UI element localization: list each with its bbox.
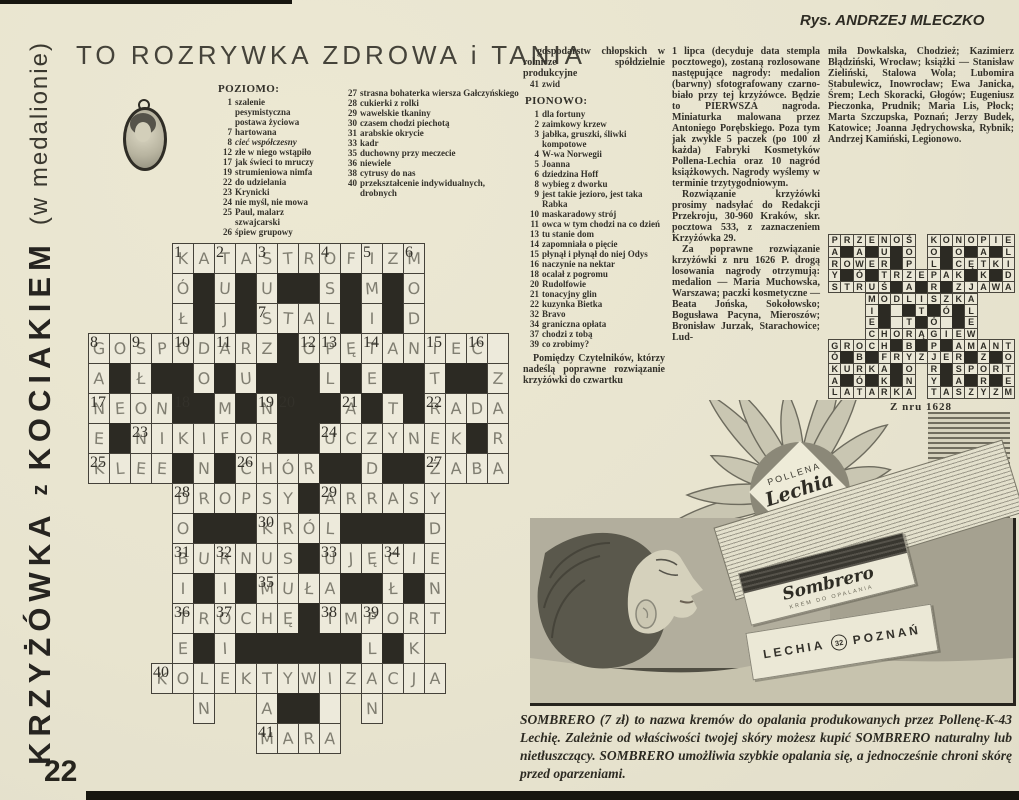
solution-letter: Ś — [879, 282, 890, 293]
crossword-cell: N — [235, 543, 257, 574]
clue-text: wybieg z dworku — [542, 179, 665, 189]
ad-box-city: POZNAŃ — [852, 623, 922, 648]
solution-letter: S — [928, 294, 939, 305]
crossword-cell: A — [445, 453, 467, 484]
pencil-letter: I — [362, 304, 382, 333]
crossword-cell: Y — [277, 663, 299, 694]
crossword-cell: O — [130, 393, 152, 424]
crossword-cell: N — [361, 693, 383, 724]
solution-letter: A — [978, 247, 989, 258]
clue-text: kuzynka Bietka — [542, 299, 665, 309]
crossword-cell: R — [256, 423, 278, 454]
solution-letter: L — [829, 387, 840, 398]
solution-letter: R — [928, 282, 939, 293]
crossword-black-cell — [214, 363, 236, 394]
crossword-black-cell — [109, 363, 131, 394]
solution-letter: K — [829, 364, 840, 375]
across-clues-col2: 27strasna bohaterka wiersza Gałczyńskieg… — [341, 88, 519, 198]
clue-text: strasna bohaterka wiersza Gałczyńskiego — [360, 88, 519, 98]
crossword-cell: Z — [361, 423, 383, 454]
ad-caption-text: SOMBRERO (7 zł) to nazwa kremów do opala… — [520, 712, 1012, 781]
pencil-letter: Z — [340, 663, 362, 693]
crossword-cell: M — [361, 273, 383, 304]
crossword-cell: R — [298, 453, 320, 484]
solution-letter: A — [978, 340, 989, 351]
pencil-letter: J — [340, 543, 361, 573]
crossword-cell: O — [172, 663, 194, 694]
pencil-letter: D — [362, 454, 383, 484]
solution-letter: Ó — [941, 305, 952, 316]
clue-number: 41 — [523, 79, 542, 89]
clue-text: jest takie jezioro, jest taka Rabka — [542, 189, 665, 209]
pencil-letter: A — [382, 333, 403, 363]
crossword-black-cell — [256, 633, 278, 664]
pencil-letter: U — [235, 363, 257, 393]
solution-letter: A — [829, 375, 840, 386]
crossword-black-cell — [382, 303, 404, 334]
pencil-letter: R — [488, 424, 509, 453]
crossword-black-cell — [319, 393, 341, 424]
crossword-cell: Ł — [130, 363, 152, 394]
solution-letter: O — [879, 294, 890, 305]
clue-text: nie myśl, nie mowa — [235, 197, 322, 207]
article-col2: 1 lipca (decyduje data stempla pocztoweg… — [672, 46, 820, 343]
crossword-cell: S — [256, 483, 278, 514]
clue-text: cytrusy do nas — [360, 168, 519, 178]
solution-letter: P — [829, 235, 840, 246]
clue-item: 28cukierki z rolki — [341, 98, 519, 108]
clue-text: owca w tym chodzi na co dzień — [542, 219, 665, 229]
solution-letter: A — [953, 375, 964, 386]
solution-letter: E — [916, 270, 927, 281]
pencil-letter: H — [257, 454, 278, 484]
across-list: 1szalenie pesymistyczna postawa życiowa7… — [216, 97, 322, 237]
solution-letter: A — [953, 340, 964, 351]
down-clues-col: gospodarstw chłopskich w rolnicze spółdz… — [523, 46, 665, 386]
solution-letter: E — [953, 329, 964, 340]
pencil-letter: A — [446, 394, 467, 423]
crossword-cell: A — [382, 333, 404, 364]
clue-number: 5 — [523, 159, 542, 169]
clue-item: 8cieć współczesny — [216, 137, 322, 147]
solution-letter: B — [854, 352, 865, 363]
clue-number: 8 — [523, 179, 542, 189]
pencil-letter: S — [320, 274, 341, 304]
solution-letter: L — [1003, 247, 1014, 258]
crossword-cell: F — [214, 423, 236, 454]
solution-letter: E — [965, 317, 976, 328]
solution-letter: N — [953, 235, 964, 246]
clue-number-in-grid: 4 — [321, 244, 329, 262]
clue-number: 6 — [523, 169, 542, 179]
crossword-cell: W — [298, 663, 320, 694]
clue-number: 7 — [216, 127, 235, 137]
crossword-black-cell — [193, 393, 215, 424]
pencil-letter: Ł — [173, 304, 193, 333]
clue-item: 5Joanna — [523, 159, 665, 169]
clue-text: arabskie okrycie — [360, 128, 519, 138]
clue-item: 12złe w niego wstąpiło — [216, 147, 322, 157]
pencil-letter: R — [298, 723, 320, 753]
crossword-cell: L — [319, 363, 341, 394]
solution-cell: Z — [964, 386, 977, 399]
page-number: 22 — [44, 755, 77, 789]
clue-number-in-grid: 24 — [321, 424, 337, 442]
solution-letter: Ó — [854, 375, 865, 386]
crossword-cell: Z — [340, 663, 362, 694]
clue-item: 17jak świeci to mruczy — [216, 157, 322, 167]
pencil-letter: C — [341, 424, 362, 453]
solution-cell: M — [1002, 386, 1015, 399]
crossword-cell: E — [172, 633, 194, 664]
crossword-black-cell — [298, 363, 320, 394]
crossword-cell: Y — [424, 483, 446, 514]
pencil-letter: Y — [382, 423, 403, 453]
crossword-cell: I — [214, 573, 236, 604]
crossword-cell: O — [214, 483, 236, 514]
clue-number-in-grid: 31 — [174, 544, 190, 562]
solution-letter: K — [978, 270, 989, 281]
pencil-letter: O — [194, 364, 215, 394]
solution-letter: R — [928, 364, 939, 375]
pencil-letter: R — [298, 453, 320, 483]
crossword-black-cell — [382, 273, 404, 304]
crossword-cell: O — [193, 363, 215, 394]
pencil-letter: O — [172, 663, 193, 693]
solution-cell: S — [828, 281, 841, 294]
solution-letter: L — [965, 305, 976, 316]
crossword-cell: K — [172, 423, 194, 454]
clue-text: cukierki z rolki — [360, 98, 519, 108]
solution-letter: A — [978, 282, 989, 293]
clue-number: 36 — [341, 158, 360, 168]
crossword-grid: KATASTROFIZMÓUUSMOŁJSTALIDGOSPODARZOPĘTA… — [88, 243, 508, 755]
clue-item: 38cytrusy do nas — [341, 168, 519, 178]
pencil-letter: A — [194, 244, 214, 273]
crossword-cell: R — [487, 423, 509, 454]
crossword-cell: L — [109, 453, 131, 484]
pencil-letter: D — [193, 333, 214, 363]
crossword-cell: T — [424, 363, 446, 394]
crossword-cell: A — [193, 243, 215, 274]
crossword-cell: I — [403, 543, 425, 574]
crossword-cell: R — [193, 483, 215, 514]
crossword-black-cell — [340, 303, 362, 334]
crossword-cell: R — [277, 513, 299, 544]
crossword-cell: O — [109, 333, 131, 364]
crossword-black-cell — [235, 273, 257, 304]
crossword-cell: Ł — [382, 573, 404, 604]
clue-number-in-grid: 6 — [405, 244, 413, 262]
clue-number: 23 — [216, 187, 235, 197]
clue-text: złe w niego wstąpiło — [235, 147, 322, 157]
crossword-cell: J — [340, 543, 362, 574]
crossword-cell: I — [172, 573, 194, 604]
crossword-black-cell — [235, 393, 257, 424]
solution-letter: A — [965, 294, 976, 305]
crossword-black-cell — [298, 603, 320, 634]
clue-text: tu stanie dom — [542, 229, 665, 239]
solution-letter: Z — [990, 387, 1001, 398]
solution-letter: E — [941, 352, 952, 363]
crossword-cell: Z — [382, 243, 404, 274]
clue-item: 30czasem chodzi piechotą — [341, 118, 519, 128]
crossword-cell: O — [382, 603, 404, 634]
pencil-letter: E — [89, 424, 110, 454]
vertical-subtitle: (w medalionie) — [26, 41, 54, 225]
pencil-letter: E — [425, 544, 446, 574]
clue-number-in-grid: 40 — [153, 664, 169, 682]
clue-number-in-grid: 25 — [90, 454, 106, 472]
crossword-black-cell — [298, 543, 320, 574]
clue-text: chodzi z tobą — [542, 329, 665, 339]
clue-text: Bravo — [542, 309, 665, 319]
clue-number-in-grid: 16 — [468, 334, 484, 352]
clue-item: 6dziedzina Hoff — [523, 169, 665, 179]
pencil-letter: S — [257, 484, 278, 514]
clue-number-in-grid: 9 — [132, 334, 140, 352]
crossword-cell: B — [466, 453, 488, 484]
clue-number-in-grid: 34 — [384, 544, 400, 562]
solution-grid: PRZENOŚKONOPIEAAUOOOALROWERPLCĘTKIYÓTRZE… — [828, 234, 1016, 398]
crossword-cell: I — [193, 423, 215, 454]
crossword-cell: D — [403, 303, 425, 334]
crossword-black-cell — [193, 573, 215, 604]
solution-letter: E — [866, 258, 877, 269]
clue-item: 3jabłka, gruszki, śliwki kompotowe — [523, 129, 665, 149]
crossword-black-cell — [466, 363, 488, 394]
solution-letter: I — [916, 294, 927, 305]
clue-item: 22kuzynka Bietka — [523, 299, 665, 309]
solution-letter: R — [841, 235, 852, 246]
crossword-black-cell — [151, 363, 173, 394]
clue-item: 23Krynicki — [216, 187, 322, 197]
solution-cell: Z — [915, 351, 928, 364]
clue-text: duchowny przy meczecie — [360, 148, 519, 158]
solution-letter: P — [928, 340, 939, 351]
crossword-cell: Y — [382, 423, 404, 454]
clue-text: niewiele — [360, 158, 519, 168]
pencil-letter: R — [193, 483, 215, 513]
crossword-cell: A — [298, 303, 320, 334]
clue-number: 9 — [523, 189, 542, 209]
crossword-cell: A — [277, 723, 299, 754]
clue-number-in-grid: 36 — [174, 604, 190, 622]
clue-text: maskaradowy strój — [542, 209, 665, 219]
pencil-letter: K — [236, 664, 256, 693]
crossword-cell: D — [193, 333, 215, 364]
solution-cell: T — [927, 386, 940, 399]
crossword-cell: S — [319, 273, 341, 304]
solution-cell: Y — [977, 386, 990, 399]
scan-edge-top — [0, 0, 292, 4]
crossword-black-cell — [235, 633, 257, 664]
pencil-letter: Ł — [298, 573, 319, 603]
pencil-letter: P — [151, 333, 173, 363]
clue-item: 26śpiew grupowy — [216, 227, 322, 237]
pencil-letter: C — [236, 604, 257, 633]
pencil-letter: N — [193, 693, 214, 723]
crossword-black-cell — [109, 423, 131, 454]
crossword-cell: C — [382, 663, 404, 694]
pencil-letter: O — [110, 334, 131, 364]
solution-letter: C — [953, 258, 964, 269]
crossword-cell: Ł — [172, 303, 194, 334]
pencil-letter: R — [236, 334, 257, 363]
clue-text: cieć współczesny — [235, 137, 322, 147]
clue-text: śpiew grupowy — [235, 227, 322, 237]
solution-letter: B — [903, 340, 914, 351]
solution-letter: T — [1003, 340, 1014, 351]
solution-letter: D — [1003, 270, 1014, 281]
clue-number: 10 — [523, 209, 542, 219]
pencil-letter: O — [235, 423, 257, 453]
pencil-letter: D — [467, 394, 488, 424]
pencil-letter: Ę — [340, 333, 362, 363]
clue-number-in-grid: 32 — [216, 544, 232, 562]
across-header: POZIOMO: — [218, 84, 322, 94]
crossword-cell: U — [193, 543, 215, 574]
crossword-cell: R — [340, 483, 362, 514]
clue-number: 20 — [523, 279, 542, 289]
solution-letter: C — [866, 329, 877, 340]
crossword-cell: E — [424, 423, 446, 454]
clue-item: 15płynął i płynął do niej Odys — [523, 249, 665, 259]
crossword-black-cell — [277, 693, 299, 724]
solution-letter: S — [829, 282, 840, 293]
crossword-cell: R — [403, 603, 425, 634]
clue-text: ocalał z pogromu — [542, 269, 665, 279]
solution-letter: T — [841, 282, 852, 293]
solution-letter: A — [1003, 282, 1014, 293]
solution-letter: K — [953, 294, 964, 305]
pencil-letter: R — [193, 603, 214, 633]
crossword-cell: J — [214, 303, 236, 334]
clue-number: 18 — [523, 269, 542, 279]
pencil-letter: M — [215, 394, 236, 423]
clue-item: 4W-wa Norwegii — [523, 149, 665, 159]
crossword-cell: A — [361, 663, 383, 694]
crossword-cell: E — [445, 333, 467, 364]
clue-item: 40przekształcenie indywidualnych, drobny… — [341, 178, 519, 198]
clue-item: 25Paul, malarz szwajcarski — [216, 207, 322, 227]
solution-letter: T — [1003, 364, 1014, 375]
pencil-letter: E — [130, 453, 152, 483]
clue-number: 37 — [523, 329, 542, 339]
clue-item: 37chodzi z tobą — [523, 329, 665, 339]
pencil-letter: A — [320, 574, 341, 604]
solution-letter: K — [953, 270, 964, 281]
solution-letter: Z — [941, 294, 952, 305]
solution-letter: I — [941, 329, 952, 340]
crossword-black-cell — [382, 363, 404, 394]
solution-letter: D — [891, 294, 902, 305]
solution-letter: P — [965, 364, 976, 375]
clue-number: 8 — [216, 137, 235, 147]
crossword-black-cell — [340, 573, 362, 604]
pencil-letter: T — [383, 394, 404, 424]
solution-cell: R — [878, 386, 891, 399]
crossword-cell: K — [403, 633, 425, 664]
solution-cell: L — [828, 386, 841, 399]
pencil-letter: R — [298, 243, 320, 273]
crossword-black-cell — [172, 363, 194, 394]
crossword-black-cell — [403, 573, 425, 604]
solution-letter: R — [879, 258, 890, 269]
pencil-letter: L — [194, 664, 215, 694]
clue-text: zwid — [542, 79, 665, 89]
solution-letter: R — [829, 258, 840, 269]
crossword-black-cell — [277, 363, 299, 394]
clue-number-in-grid: 2 — [216, 244, 224, 262]
pencil-letter: A — [256, 693, 277, 723]
crossword-cell: A — [445, 393, 467, 424]
crossword-cell: K — [235, 663, 257, 694]
pencil-letter: Z — [383, 244, 403, 273]
pencil-letter: T — [425, 604, 446, 633]
crossword-cell — [487, 333, 509, 364]
clue-text: do udzielania — [235, 177, 322, 187]
pencil-letter: T — [277, 303, 299, 333]
paragraph: 1 lipca (decyduje data stempla pocztoweg… — [672, 46, 820, 189]
clue-item: 16naczynie na nektar — [523, 259, 665, 269]
crossword-black-cell — [319, 633, 341, 664]
crossword-black-cell — [235, 573, 257, 604]
solution-letter: M — [1003, 387, 1014, 398]
intro-paragraph: Pomiędzy Czytelników, którzy nadeślą pop… — [523, 353, 665, 386]
crossword-black-cell — [235, 513, 257, 544]
vertical-title-word2: KOCIAKIEM — [22, 239, 58, 470]
pencil-letter: I — [319, 663, 341, 693]
clue-item: 19strumieniowa nimfa — [216, 167, 322, 177]
crossword-cell: Y — [277, 483, 299, 514]
crossword-cell: I — [151, 423, 173, 454]
crossword-cell: M — [340, 603, 362, 634]
clue-number-in-grid: 22 — [426, 394, 442, 412]
solution-letter: O — [941, 235, 952, 246]
solution-letter: O — [854, 340, 865, 351]
pencil-letter: P — [235, 483, 256, 513]
pencil-letter: O — [173, 514, 194, 543]
clue-item: 22do udzielania — [216, 177, 322, 187]
pencil-letter: B — [466, 453, 487, 483]
solution-letter: G — [928, 329, 939, 340]
crossword-black-cell — [340, 633, 362, 664]
pencil-letter: L — [320, 304, 341, 334]
solution-letter: O — [903, 247, 914, 258]
crossword-cell: E — [88, 423, 110, 454]
solution-letter: J — [965, 282, 976, 293]
clue-item: 1dla fortuny — [523, 109, 665, 119]
crossword-black-cell — [319, 453, 341, 484]
pencil-letter: E — [215, 664, 236, 693]
crossword-cell: R — [298, 243, 320, 274]
pencil-letter: Z — [362, 424, 383, 454]
crossword-black-cell — [403, 513, 425, 544]
solution-letter: T — [916, 305, 927, 316]
crossword-black-cell — [277, 333, 299, 364]
pencil-letter: R — [341, 484, 362, 514]
crossword-cell: U — [256, 273, 278, 304]
solution-letter: A — [829, 247, 840, 258]
solution-letter: L — [928, 258, 939, 269]
crossword-black-cell — [298, 633, 320, 664]
pencil-letter: S — [403, 483, 425, 513]
paragraph: Za poprawne rozwiązanie krzyżówki z nru … — [672, 244, 820, 343]
crossword-black-cell — [298, 693, 320, 724]
pencil-letter: A — [446, 454, 467, 484]
pencil-letter: A — [487, 393, 508, 423]
